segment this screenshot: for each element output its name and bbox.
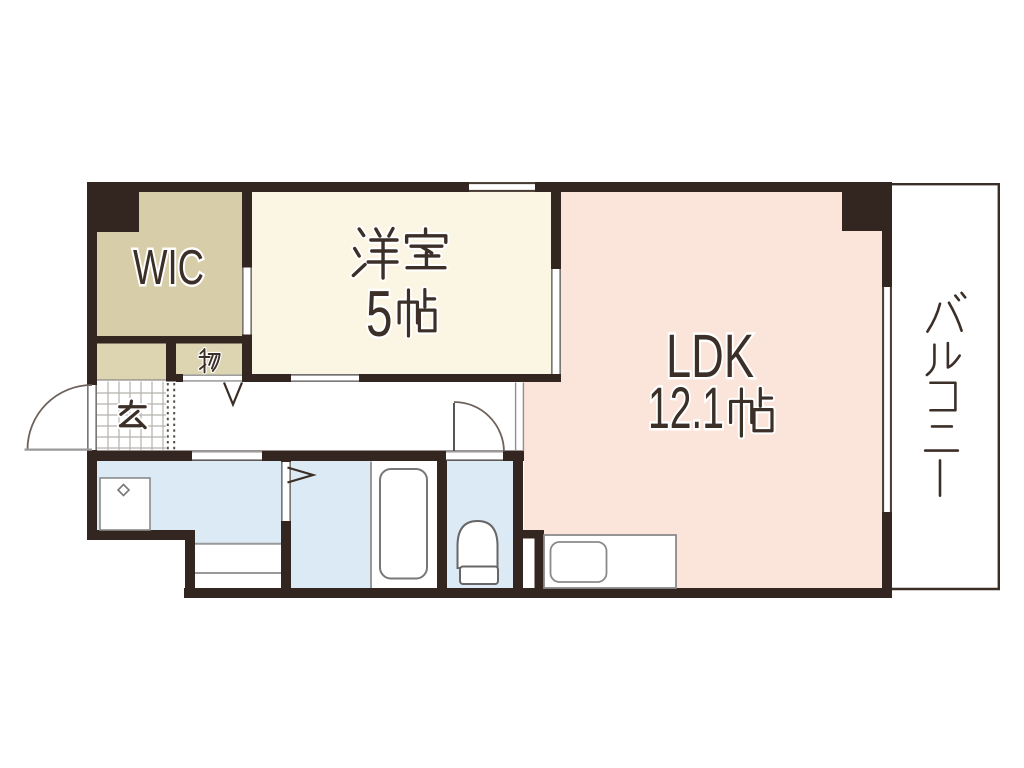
svg-text:12.1: 12.1 (648, 376, 724, 441)
svg-text:WIC: WIC (133, 241, 204, 295)
svg-text:5: 5 (366, 277, 393, 350)
